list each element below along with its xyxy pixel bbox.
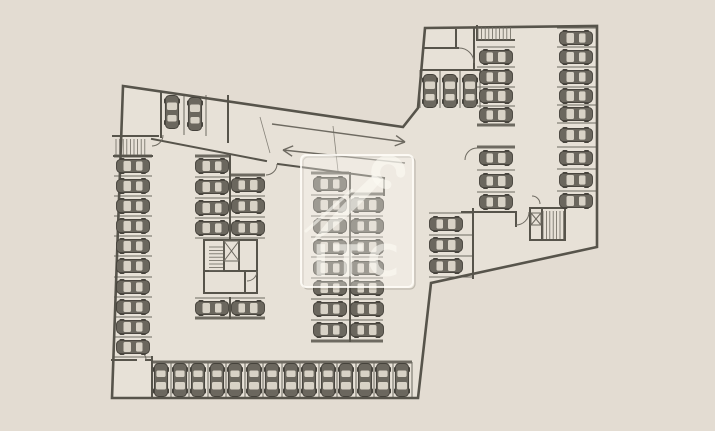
watermark-text: ITC (313, 236, 404, 287)
parked-car (314, 322, 347, 338)
parked-car (480, 173, 513, 189)
parked-car (117, 339, 150, 355)
parked-car (462, 75, 478, 108)
parked-car (480, 107, 513, 123)
parked-car (117, 238, 150, 254)
parked-car (480, 49, 513, 65)
parked-car (190, 364, 206, 397)
parked-car (480, 69, 513, 85)
parked-car (196, 220, 229, 236)
parked-car (153, 364, 169, 397)
parked-car (117, 258, 150, 274)
parked-car (117, 299, 150, 315)
floorplan-page: ITC (0, 0, 715, 431)
parked-car (227, 364, 243, 397)
parked-car (480, 88, 513, 104)
parked-car (232, 198, 265, 214)
parked-car (480, 194, 513, 210)
parked-car (430, 216, 463, 232)
parked-car (351, 322, 384, 338)
parked-car (209, 364, 225, 397)
parked-car (351, 301, 384, 317)
parked-car (246, 364, 262, 397)
parked-car (232, 177, 265, 193)
parked-car (560, 193, 593, 209)
parked-car (338, 364, 354, 397)
parked-car (560, 49, 593, 65)
parked-car (164, 96, 180, 129)
parked-car (560, 88, 593, 104)
parked-car (394, 364, 410, 397)
parked-car (560, 30, 593, 46)
watermark: ITC (301, 155, 415, 289)
parked-car (480, 150, 513, 166)
parked-car (422, 75, 438, 108)
floorplan-drawing: ITC (0, 0, 715, 431)
parked-car (117, 178, 150, 194)
parked-car (232, 300, 265, 316)
parked-car (560, 127, 593, 143)
parked-car (560, 69, 593, 85)
parked-car (375, 364, 391, 397)
parked-car (232, 220, 265, 236)
parked-car (264, 364, 280, 397)
parked-car (117, 218, 150, 234)
parked-car (430, 258, 463, 274)
parked-car (117, 198, 150, 214)
parked-car (172, 364, 188, 397)
parked-car (117, 319, 150, 335)
parked-car (117, 158, 150, 174)
parked-car (187, 98, 203, 131)
parked-car (196, 300, 229, 316)
parked-car (283, 364, 299, 397)
parked-car (196, 200, 229, 216)
parked-car (314, 301, 347, 317)
parked-car (320, 364, 336, 397)
parked-car (560, 172, 593, 188)
parked-car (196, 179, 229, 195)
parked-car (357, 364, 373, 397)
parked-car (301, 364, 317, 397)
parked-car (442, 75, 458, 108)
parked-car (196, 158, 229, 174)
parked-car (430, 237, 463, 253)
parked-car (117, 279, 150, 295)
parked-car (560, 150, 593, 166)
parked-car (560, 106, 593, 122)
